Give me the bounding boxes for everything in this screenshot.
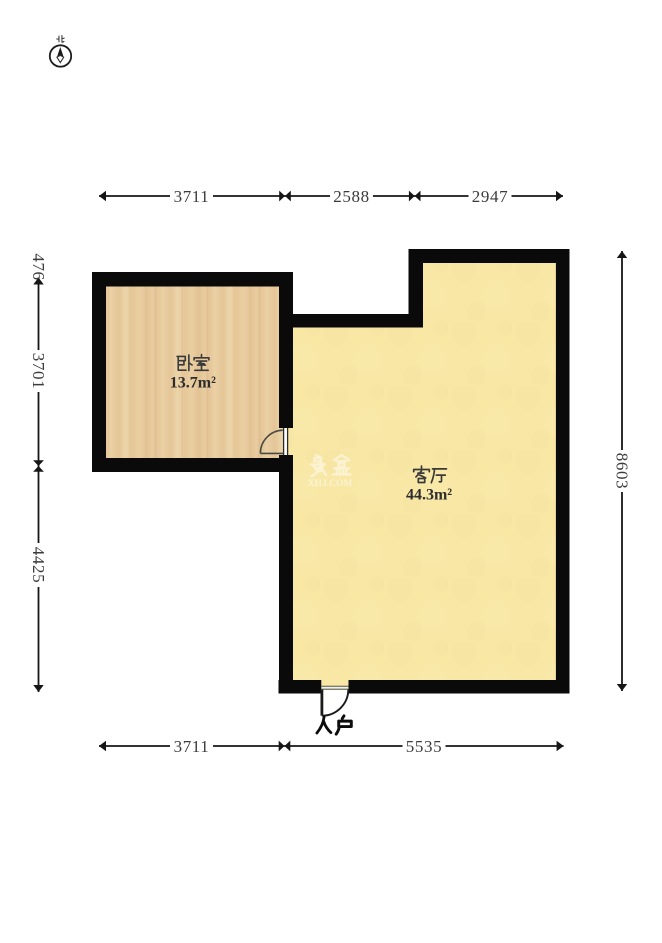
svg-text:8603: 8603 [613, 453, 632, 489]
svg-text:476: 476 [29, 253, 48, 280]
svg-text:3711: 3711 [174, 737, 210, 756]
svg-text:XHJ.COM: XHJ.COM [308, 479, 353, 489]
svg-text:4425: 4425 [29, 547, 48, 583]
svg-text:2947: 2947 [472, 187, 508, 206]
svg-text:5535: 5535 [406, 737, 442, 756]
svg-text:3711: 3711 [174, 187, 210, 206]
svg-text:3701: 3701 [29, 353, 48, 389]
svg-text:2588: 2588 [333, 187, 369, 206]
svg-text:13.7m²: 13.7m² [170, 375, 216, 392]
svg-text:44.3m²: 44.3m² [406, 487, 452, 504]
